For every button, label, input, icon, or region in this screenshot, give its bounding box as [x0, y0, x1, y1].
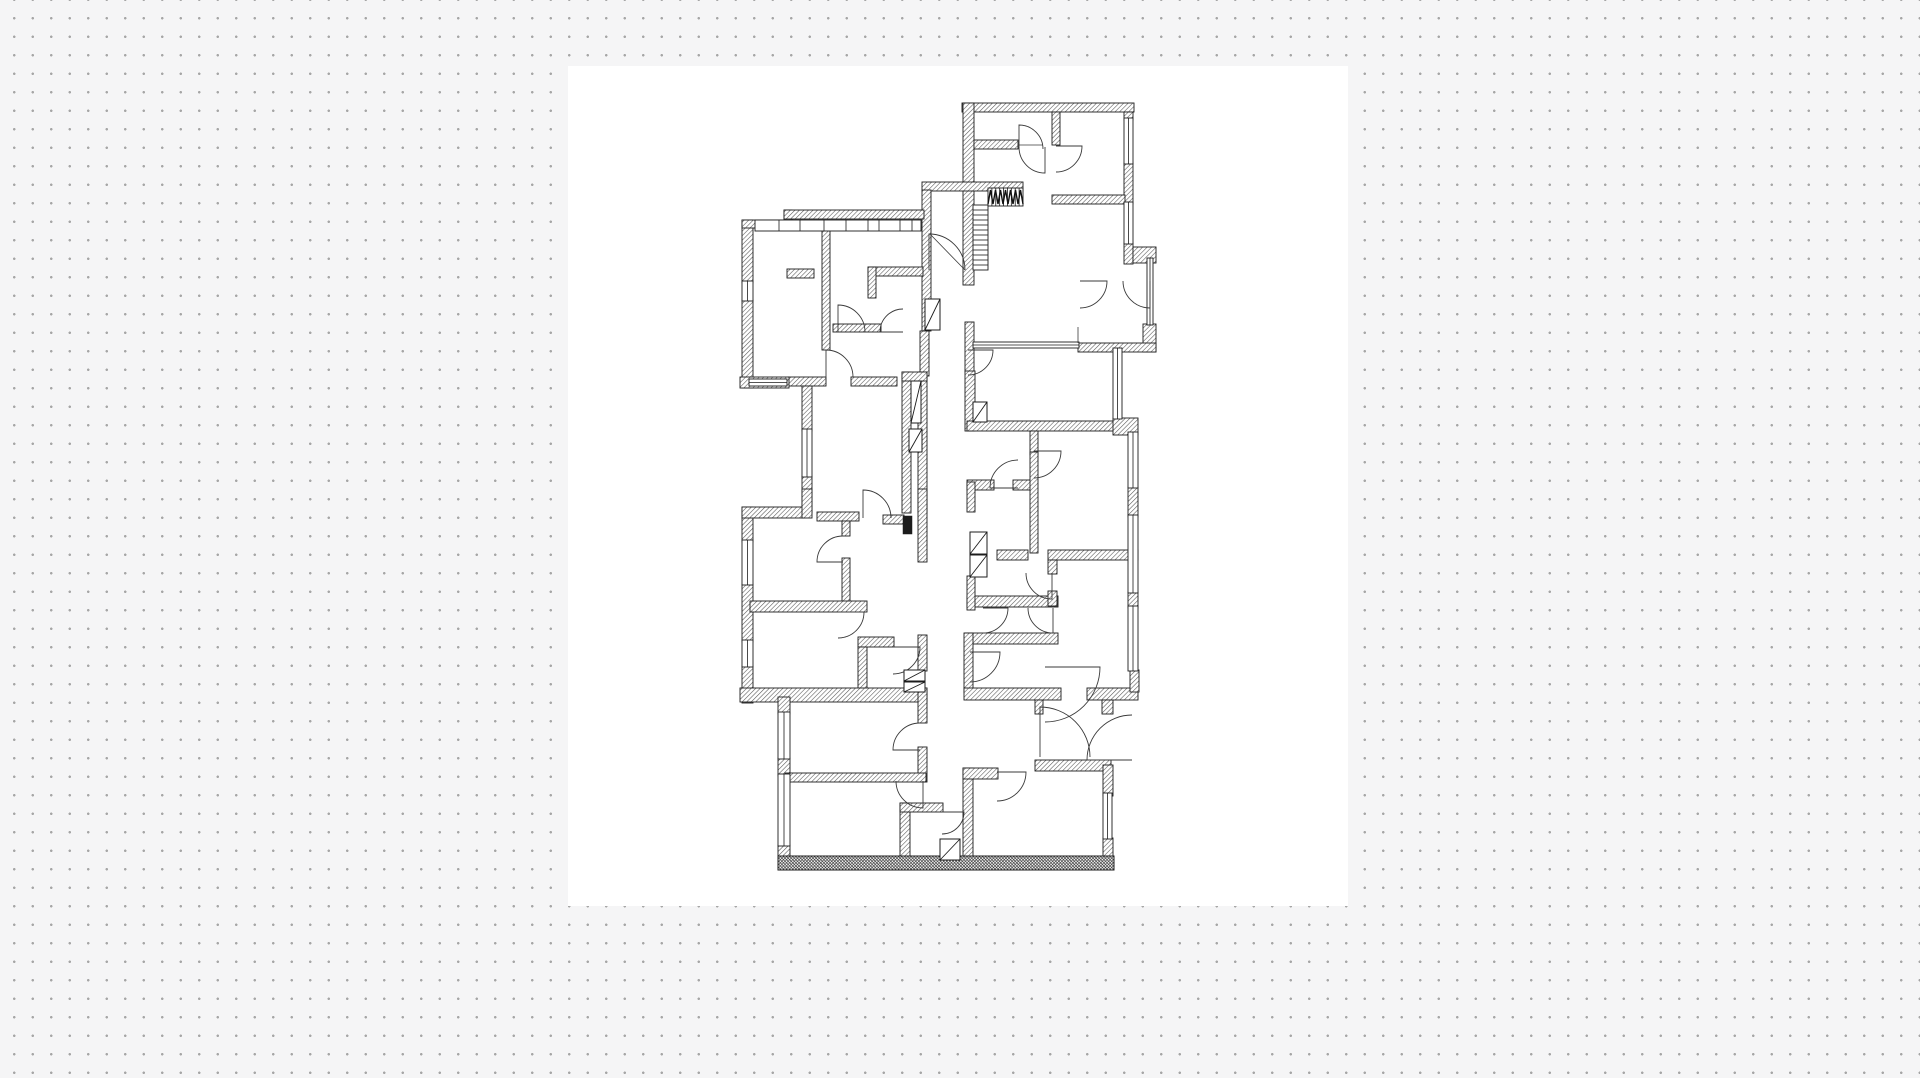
wall-segment [963, 768, 998, 779]
door-swing-arc [817, 536, 843, 562]
door-swing-arc [983, 608, 1008, 633]
wall-segment [740, 688, 927, 702]
wall-segment [1048, 560, 1057, 574]
wall-segment [967, 421, 1114, 431]
wall-segment [967, 482, 975, 512]
wall-segment [964, 633, 973, 693]
wall-segment [1013, 480, 1031, 490]
wall-segment [868, 267, 876, 298]
design-canvas [0, 0, 1920, 1078]
wall-segment [802, 386, 812, 431]
wall-segment [1052, 112, 1060, 145]
wall-segment [742, 584, 753, 642]
wall-segment [918, 489, 927, 562]
wall-segment [974, 140, 1018, 149]
door-swing-arc [1019, 147, 1045, 173]
wall-segment [964, 688, 1061, 700]
walls-layer [740, 103, 1156, 870]
wall-segment [1048, 550, 1138, 560]
door-swing-arc [1123, 281, 1150, 308]
wall-segment [1102, 700, 1113, 714]
wall-segment [858, 647, 867, 690]
door-swing-arc [826, 350, 853, 377]
wall-segment [965, 633, 1058, 644]
door-swing-arc [942, 812, 964, 834]
wall-segment [785, 773, 926, 782]
wall-segment [1124, 243, 1133, 264]
wall-segment [900, 803, 943, 812]
wall-segment [742, 300, 753, 388]
cabinet-row [755, 220, 921, 231]
wall-segment [787, 269, 814, 278]
wall-segment [1035, 760, 1111, 771]
wall-segment [1052, 195, 1125, 204]
wall-segment [1103, 765, 1113, 796]
wall-segment [902, 372, 927, 381]
wall-segment [778, 697, 790, 714]
wall-segment [822, 228, 830, 350]
door-swing-arc [880, 309, 903, 332]
wall-segment [1130, 670, 1139, 692]
door-swing-arc [893, 723, 920, 750]
solid-wall-segment [903, 516, 912, 534]
floor-plan-viewer: { "canvas": { "background_color": "#f5f5… [0, 0, 1920, 1078]
wall-segment [750, 601, 867, 612]
wall-segment [883, 515, 904, 524]
wall-segment [784, 210, 924, 219]
wall-segment [963, 103, 974, 285]
wall-segment [962, 103, 1134, 112]
floor-plan [0, 0, 1920, 1078]
wall-segment [788, 377, 826, 386]
wall-segment [858, 637, 894, 647]
wall-segment [802, 489, 812, 518]
door-swing-arc [970, 652, 1000, 682]
wall-segment [742, 220, 753, 283]
wall-segment [920, 331, 929, 376]
door-swing-arc [1028, 608, 1053, 633]
door-swing-arc [1040, 707, 1090, 757]
stairs-layer [973, 188, 1023, 270]
wall-segment [833, 324, 881, 332]
door-swing-arc [838, 612, 864, 638]
wall-segment [997, 550, 1028, 560]
door-swing-arc [1080, 281, 1107, 308]
wall-segment [742, 507, 804, 518]
door-swing-arc [1087, 715, 1132, 760]
wall-segment [1030, 452, 1038, 553]
wall-segment [842, 521, 850, 536]
wall-segment [817, 512, 859, 521]
wall-segment [842, 558, 850, 607]
door-swing-arc [863, 490, 891, 518]
door-swing-arc [1056, 146, 1082, 172]
wall-segment [1128, 487, 1138, 517]
wall-segment [967, 576, 975, 610]
wall-segment [851, 377, 897, 386]
wall-segment [963, 768, 973, 859]
door-swing-arc [997, 772, 1026, 801]
wall-segment [918, 688, 927, 723]
